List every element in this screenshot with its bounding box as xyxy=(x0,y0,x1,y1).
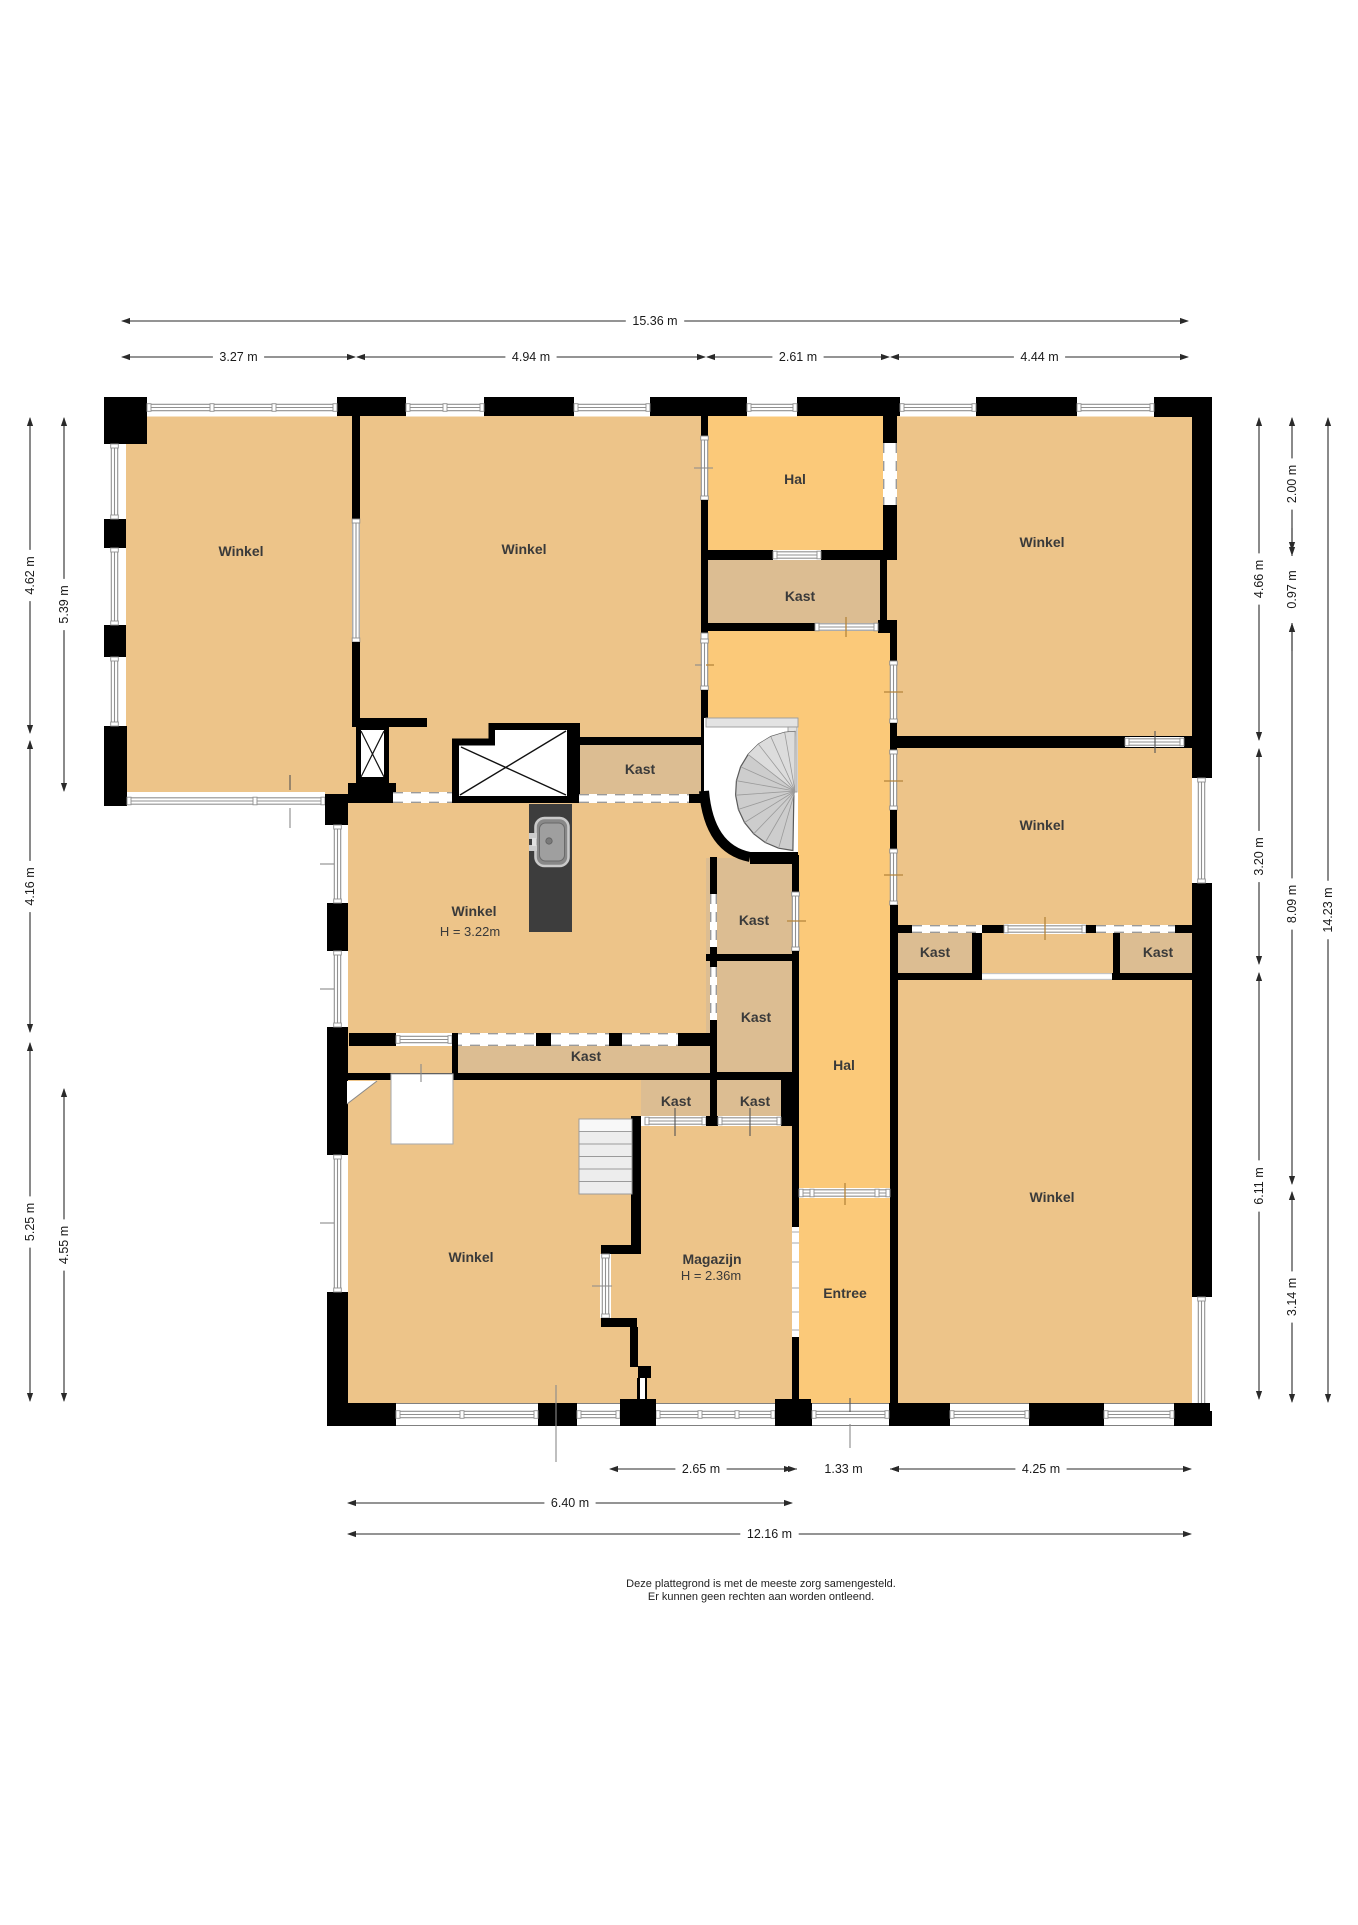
svg-text:Magazijn: Magazijn xyxy=(682,1251,741,1267)
svg-text:Winkel: Winkel xyxy=(449,1249,494,1265)
svg-text:Er kunnen geen rechten aan wor: Er kunnen geen rechten aan worden ontlee… xyxy=(648,1591,874,1603)
svg-text:2.61 m: 2.61 m xyxy=(779,350,817,364)
svg-text:3.14 m: 3.14 m xyxy=(1285,1278,1299,1316)
svg-text:Kast: Kast xyxy=(625,761,656,777)
svg-text:Kast: Kast xyxy=(661,1093,692,1109)
svg-text:Kast: Kast xyxy=(741,1009,772,1025)
svg-text:3.20 m: 3.20 m xyxy=(1252,837,1266,875)
svg-text:H = 3.22m: H = 3.22m xyxy=(440,924,500,939)
svg-text:4.25 m: 4.25 m xyxy=(1022,1462,1060,1476)
svg-text:0.97 m: 0.97 m xyxy=(1285,570,1299,608)
svg-text:Hal: Hal xyxy=(833,1057,855,1073)
svg-text:6.11 m: 6.11 m xyxy=(1252,1167,1266,1204)
svg-text:4.16 m: 4.16 m xyxy=(23,867,37,905)
svg-text:Kast: Kast xyxy=(920,944,951,960)
svg-text:4.62 m: 4.62 m xyxy=(23,556,37,594)
svg-text:Kast: Kast xyxy=(785,588,816,604)
svg-text:4.44 m: 4.44 m xyxy=(1020,350,1058,364)
svg-text:15.36 m: 15.36 m xyxy=(632,314,677,328)
svg-text:8.09 m: 8.09 m xyxy=(1285,885,1299,923)
svg-text:H = 2.36m: H = 2.36m xyxy=(681,1268,741,1283)
svg-text:2.00 m: 2.00 m xyxy=(1285,465,1299,503)
svg-text:Winkel: Winkel xyxy=(502,541,547,557)
svg-text:Deze plattegrond is met de mee: Deze plattegrond is met de meeste zorg s… xyxy=(626,1578,896,1590)
svg-text:Hal: Hal xyxy=(784,471,806,487)
svg-text:6.40 m: 6.40 m xyxy=(551,1496,589,1510)
svg-text:12.16 m: 12.16 m xyxy=(747,1527,792,1541)
svg-text:Winkel: Winkel xyxy=(1020,534,1065,550)
svg-text:14.23 m: 14.23 m xyxy=(1321,887,1335,932)
svg-text:Winkel: Winkel xyxy=(1020,817,1065,833)
svg-text:2.65 m: 2.65 m xyxy=(682,1462,720,1476)
svg-text:Kast: Kast xyxy=(739,912,770,928)
svg-text:5.39 m: 5.39 m xyxy=(57,585,71,623)
svg-text:Entree: Entree xyxy=(823,1285,867,1301)
svg-text:3.27 m: 3.27 m xyxy=(219,350,257,364)
svg-text:4.55 m: 4.55 m xyxy=(57,1226,71,1264)
svg-text:Winkel: Winkel xyxy=(1030,1189,1075,1205)
svg-text:1.33 m: 1.33 m xyxy=(824,1462,862,1476)
svg-text:Kast: Kast xyxy=(1143,944,1174,960)
svg-text:Winkel: Winkel xyxy=(219,543,264,559)
svg-text:5.25 m: 5.25 m xyxy=(23,1203,37,1241)
svg-text:4.66 m: 4.66 m xyxy=(1252,560,1266,598)
svg-text:4.94 m: 4.94 m xyxy=(512,350,550,364)
svg-text:Kast: Kast xyxy=(571,1048,602,1064)
svg-text:Kast: Kast xyxy=(740,1093,771,1109)
svg-text:Winkel: Winkel xyxy=(452,903,497,919)
